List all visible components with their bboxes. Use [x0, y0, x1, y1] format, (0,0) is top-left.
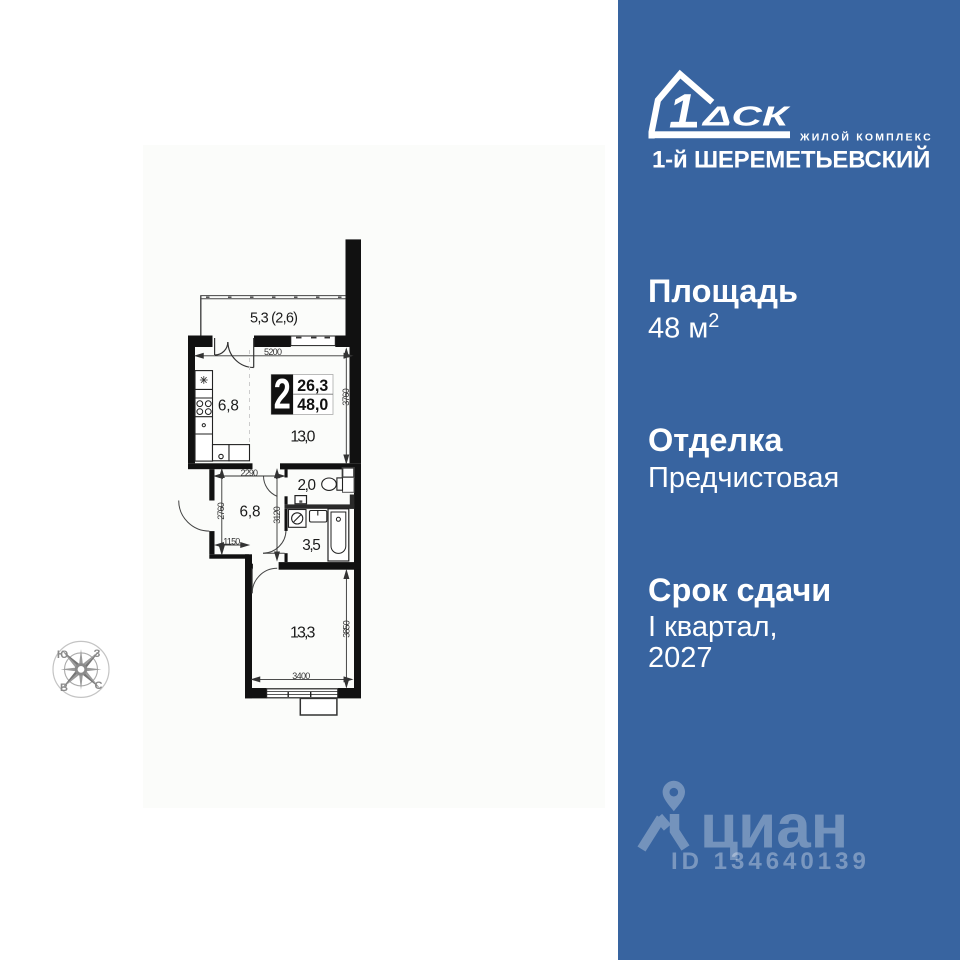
svg-text:6,8: 6,8: [218, 398, 239, 415]
svg-text:2: 2: [274, 371, 291, 419]
svg-text:ЖИЛОЙ КОМПЛЕКС: ЖИЛОЙ КОМПЛЕКС: [799, 131, 933, 144]
svg-text:13,0: 13,0: [290, 429, 315, 446]
svg-text:48,0: 48,0: [297, 395, 328, 414]
svg-text:2,0: 2,0: [298, 477, 317, 494]
svg-text:3760: 3760: [341, 388, 351, 406]
svg-text:Ю: Ю: [57, 649, 68, 661]
svg-text:3,5: 3,5: [302, 537, 321, 554]
svg-text:1: 1: [669, 86, 696, 139]
svg-text:ID 134640139: ID 134640139: [671, 848, 870, 875]
svg-text:С: С: [95, 680, 103, 692]
svg-text:26,3: 26,3: [297, 376, 328, 395]
svg-text:5200: 5200: [264, 347, 282, 357]
svg-text:6,8: 6,8: [240, 504, 261, 521]
svg-text:З: З: [94, 648, 101, 660]
svg-text:13,3: 13,3: [290, 625, 316, 642]
svg-text:3850: 3850: [341, 620, 351, 638]
svg-text:3400: 3400: [292, 671, 310, 681]
svg-text:2290: 2290: [241, 468, 258, 478]
svg-text:ΔСК: ΔСК: [701, 100, 790, 131]
svg-text:1150: 1150: [223, 536, 240, 546]
svg-text:2760: 2760: [216, 502, 226, 520]
svg-text:1-й ШЕРЕМЕТЬЕВСКИЙ: 1-й ШЕРЕМЕТЬЕВСКИЙ: [652, 146, 930, 174]
svg-text:В: В: [60, 682, 68, 694]
svg-text:5,3 (2,6): 5,3 (2,6): [250, 311, 298, 327]
svg-text:3120: 3120: [272, 506, 282, 524]
